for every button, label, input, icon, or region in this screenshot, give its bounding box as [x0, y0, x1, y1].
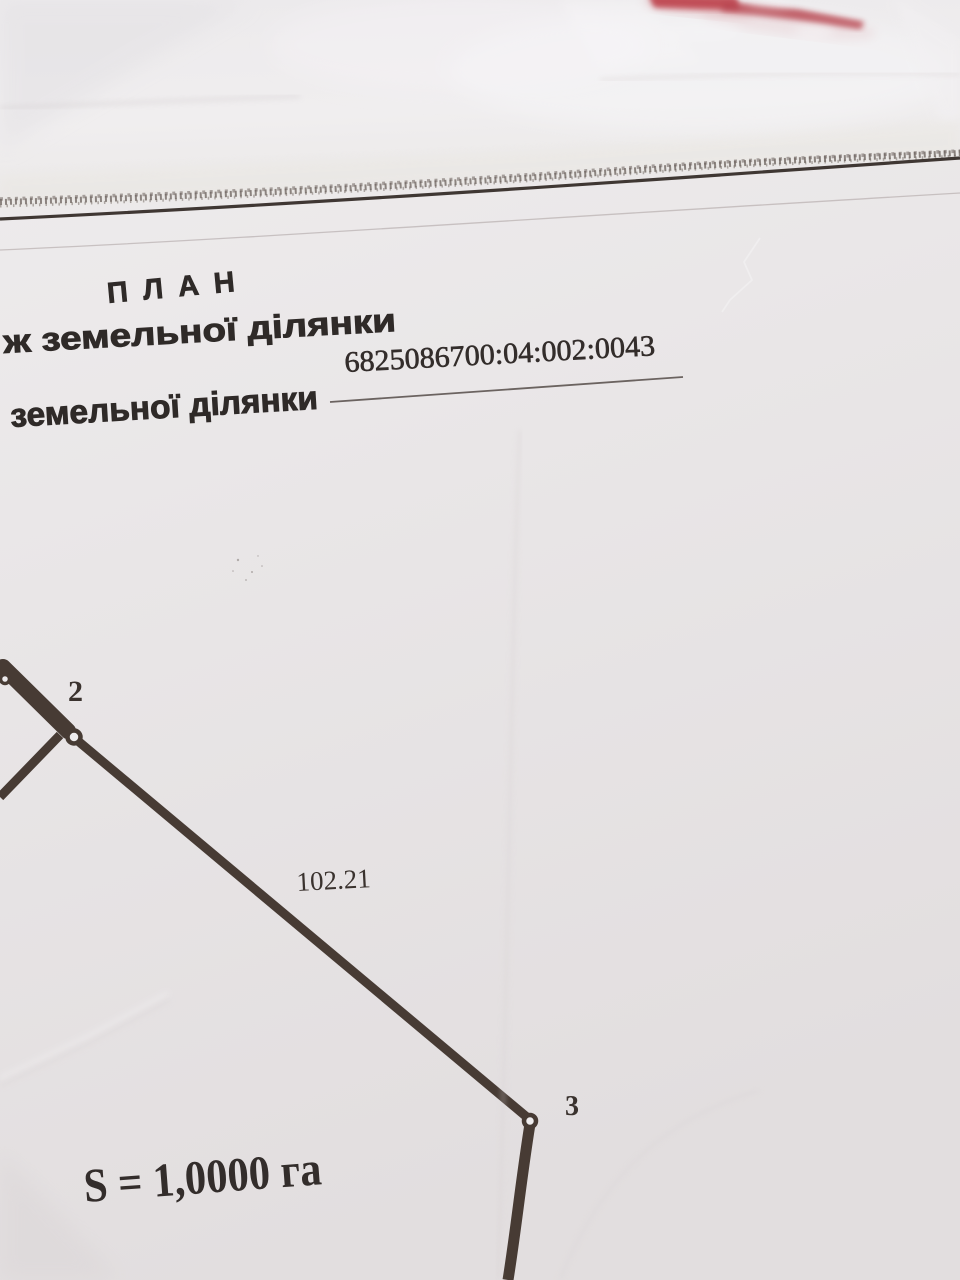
- svg-text:102.21: 102.21: [296, 863, 372, 897]
- svg-text:2: 2: [68, 675, 83, 708]
- svg-text:3: 3: [565, 1091, 579, 1122]
